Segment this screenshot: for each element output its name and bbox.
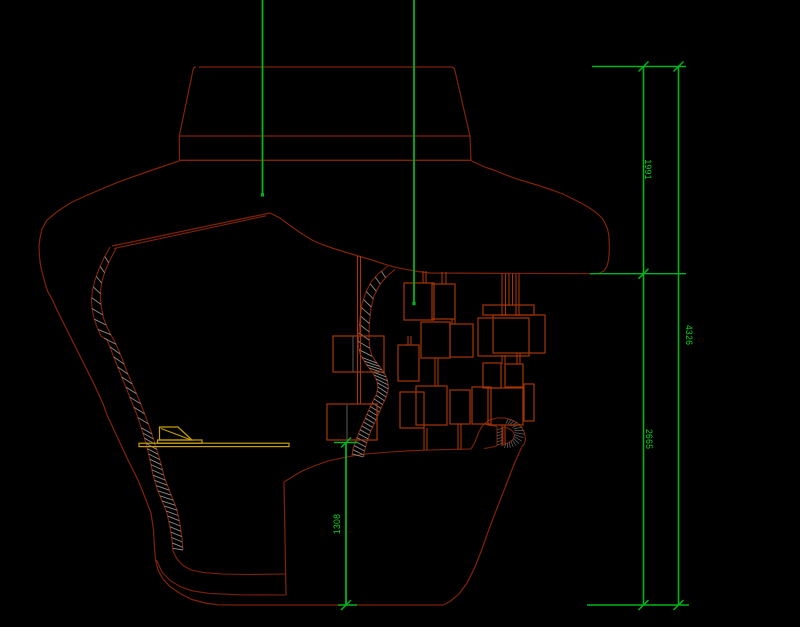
svg-text:4326: 4326 (684, 325, 694, 345)
svg-text:2665: 2665 (644, 429, 654, 449)
svg-text:1991: 1991 (643, 159, 653, 179)
svg-text:1308: 1308 (332, 514, 342, 534)
